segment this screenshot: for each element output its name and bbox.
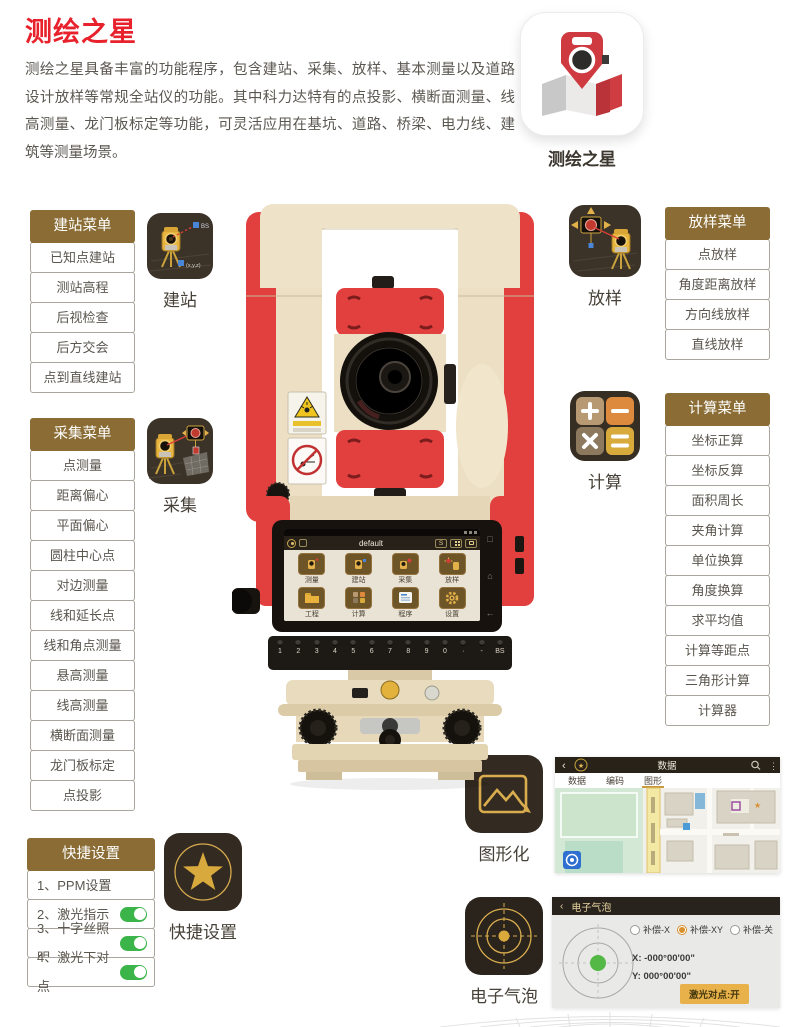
menu-item: 角度换算 bbox=[665, 575, 770, 606]
svg-text:(x,y,z): (x,y,z) bbox=[186, 263, 201, 269]
key-minus: - bbox=[474, 640, 490, 666]
app-tile: 计算 bbox=[338, 587, 380, 621]
svg-text:BS: BS bbox=[201, 224, 209, 230]
key-5: 5 bbox=[345, 640, 361, 666]
menu-item: 测站高程 bbox=[30, 272, 135, 303]
menu-item: 龙门板标定 bbox=[30, 750, 135, 781]
globe-mesh-decoration bbox=[420, 996, 787, 1027]
menu-item: 线高测量 bbox=[30, 690, 135, 721]
surveystar-app-icon bbox=[536, 28, 628, 120]
kuaijie-star-icon bbox=[164, 833, 242, 911]
menu-caiji: 采集菜单 点测量 距离偏心 平面偏心 圆柱中心点 对边测量 线和延长点 线和角点… bbox=[30, 418, 135, 811]
app-tile: 程序 bbox=[385, 587, 427, 621]
total-station-body bbox=[232, 196, 548, 792]
laser-warning-label bbox=[288, 392, 326, 434]
app-grid: 测量 建站 采集 放样 工程 计算 程序 设置 bbox=[284, 550, 480, 621]
app-tile: 设置 bbox=[431, 587, 473, 621]
feature-fangyang: 放样 bbox=[565, 205, 645, 309]
menu-item: 点到直线建站 bbox=[30, 362, 135, 393]
menu-item: 方向线放样 bbox=[665, 299, 770, 330]
jianzhan-icon: BS (x,y,z) bbox=[147, 213, 213, 279]
menu-item-label: 4、激光下对点 bbox=[37, 943, 120, 1001]
app-tile: 放样 bbox=[431, 553, 473, 587]
menu-item: 单位换算 bbox=[665, 545, 770, 576]
tab-graphic: 图形 bbox=[644, 775, 662, 786]
toolbar-button-s: S bbox=[435, 539, 447, 548]
radio-comp-off: 补偿-关 bbox=[730, 923, 773, 936]
menu-item-label: 1、PPM设置 bbox=[37, 871, 111, 900]
key-3: 3 bbox=[309, 640, 325, 666]
device-keyboard: 1 2 3 4 5 6 7 8 9 0 · - BS bbox=[272, 640, 508, 666]
project-name: default bbox=[310, 539, 432, 548]
menu-item: 求平均值 bbox=[665, 605, 770, 636]
menu-item: 面积周长 bbox=[665, 485, 770, 516]
nav-home-icon: ⌂ bbox=[487, 571, 492, 581]
feature-label: 快捷设置 bbox=[161, 918, 245, 943]
app-program-icon bbox=[392, 587, 419, 609]
ebubble-header: ‹ 电子气泡 bbox=[552, 897, 780, 915]
menu-item: 对边测量 bbox=[30, 570, 135, 601]
menu-item: 平面偏心 bbox=[30, 510, 135, 541]
radio-comp-xy: 补偿-XY bbox=[677, 923, 723, 936]
key-1: 1 bbox=[272, 640, 288, 666]
screen-status-bar bbox=[284, 529, 480, 536]
back-icon: ‹ bbox=[560, 901, 563, 912]
back-icon: ‹ bbox=[562, 760, 566, 772]
menu-button-icon bbox=[299, 539, 307, 547]
app-hero: 测绘之星 bbox=[519, 12, 645, 170]
menu-jisuan: 计算菜单 坐标正算 坐标反算 面积周长 夹角计算 单位换算 角度换算 求平均值 … bbox=[665, 393, 770, 726]
menu-item: 直线放样 bbox=[665, 329, 770, 360]
toggle-on-reticle-light bbox=[120, 936, 147, 951]
menu-kuaijie: 快捷设置 1、PPM设置 2、激光指示 3、十字丝照明 4、激光下对点 bbox=[27, 838, 155, 987]
jisuan-icon bbox=[570, 391, 640, 461]
map-screen-title: 数据 bbox=[657, 760, 677, 772]
device-nav-buttons: □ ⌂ ← bbox=[482, 534, 498, 618]
key-9: 9 bbox=[419, 640, 435, 666]
tab-code: 编码 bbox=[606, 775, 624, 786]
page-title: 测绘之星 bbox=[25, 10, 137, 49]
menu-item: 后方交会 bbox=[30, 332, 135, 363]
menu-item: 点测量 bbox=[30, 450, 135, 481]
menu-fangyang: 放样菜单 点放样 角度距离放样 方向线放样 直线放样 bbox=[665, 207, 770, 360]
menu-item: 线和延长点 bbox=[30, 600, 135, 631]
key-dot: · bbox=[455, 640, 471, 666]
feature-kuaijie: 快捷设置 bbox=[161, 833, 245, 943]
page: 测绘之星 测绘之星具备丰富的功能程序，包含建站、采集、放样、基本测量以及道路设计… bbox=[0, 0, 787, 1027]
app-collect-icon bbox=[392, 553, 419, 575]
key-6: 6 bbox=[364, 640, 380, 666]
app-stakeout-icon bbox=[439, 553, 466, 575]
star-button-icon bbox=[287, 539, 296, 548]
menu-item: 坐标反算 bbox=[665, 455, 770, 486]
intro-paragraph: 测绘之星具备丰富的功能程序，包含建站、采集、放样、基本测量以及道路设计放样等常规… bbox=[25, 57, 515, 167]
app-settings-gear-icon bbox=[439, 587, 466, 609]
menu-item: 计算器 bbox=[665, 695, 770, 726]
map-canvas: ★ bbox=[555, 788, 780, 873]
key-4: 4 bbox=[327, 640, 343, 666]
grid-view-button-icon bbox=[450, 539, 462, 548]
compensation-radios: 补偿-X 补偿-XY 补偿-关 bbox=[630, 923, 773, 936]
feature-label: 放样 bbox=[565, 284, 645, 309]
tab-data: 数据 bbox=[568, 775, 586, 786]
feature-caiji: 采集 bbox=[143, 418, 217, 516]
x-value: X: -000°00'00" bbox=[632, 953, 695, 964]
radio-off-icon bbox=[630, 925, 640, 935]
level-bullseye bbox=[557, 920, 639, 1006]
menu-header: 放样菜单 bbox=[665, 207, 770, 240]
menu-item: 悬高测量 bbox=[30, 660, 135, 691]
feature-label: 图形化 bbox=[462, 840, 546, 865]
bubble-dot bbox=[590, 955, 606, 971]
menu-item: 距离偏心 bbox=[30, 480, 135, 511]
app-tile: 工程 bbox=[291, 587, 333, 621]
menu-header: 快捷设置 bbox=[27, 838, 155, 871]
menu-jianzhan: 建站菜单 已知点建站 测站高程 后视检查 后方交会 点到直线建站 bbox=[30, 210, 135, 393]
feature-label: 建站 bbox=[143, 286, 217, 311]
fangyang-icon bbox=[569, 205, 641, 277]
laser-prohibition-label bbox=[288, 438, 326, 484]
nav-back-icon: ← bbox=[486, 608, 495, 618]
toggle-on-laser-plummet bbox=[120, 965, 147, 980]
menu-item: 三角形计算 bbox=[665, 665, 770, 696]
app-icon-label: 测绘之星 bbox=[519, 145, 645, 170]
map-star-marker: ★ bbox=[754, 801, 761, 810]
menu-item: 点投影 bbox=[30, 780, 135, 811]
total-station-photo: default S 测量 建站 采集 放样 工程 计算 程序 设置 □ ⌂ ← bbox=[232, 196, 548, 792]
app-tile: 建站 bbox=[338, 553, 380, 587]
menu-item: 角度距离放样 bbox=[665, 269, 770, 300]
radio-off-icon bbox=[730, 925, 740, 935]
menu-item: 后视检查 bbox=[30, 302, 135, 333]
menu-header: 计算菜单 bbox=[665, 393, 770, 426]
key-7: 7 bbox=[382, 640, 398, 666]
ebubble-screenshot: ‹ 电子气泡 补偿-X 补偿-XY 补偿-关 X: -000°00'00" Y:… bbox=[552, 897, 780, 1008]
key-0: 0 bbox=[437, 640, 453, 666]
radio-on-icon bbox=[677, 925, 687, 935]
menu-item: 圆柱中心点 bbox=[30, 540, 135, 571]
key-8: 8 bbox=[400, 640, 416, 666]
app-calc-icon bbox=[345, 587, 372, 609]
menu-item: 计算等距点 bbox=[665, 635, 770, 666]
menu-header: 采集菜单 bbox=[30, 418, 135, 451]
radio-comp-x: 补偿-X bbox=[630, 923, 670, 936]
menu-item: 夹角计算 bbox=[665, 515, 770, 546]
device-screen: default S 测量 建站 采集 放样 工程 计算 程序 设置 bbox=[284, 529, 480, 621]
feature-jisuan: 计算 bbox=[565, 391, 645, 493]
menu-dots-icon: ⋮ bbox=[769, 761, 778, 771]
menu-item: 1、PPM设置 bbox=[27, 870, 155, 900]
ebubble-body: 补偿-X 补偿-XY 补偿-关 X: -000°00'00" Y: 000°00… bbox=[552, 915, 780, 1008]
app-tile: 采集 bbox=[385, 553, 427, 587]
menu-item: 线和角点测量 bbox=[30, 630, 135, 661]
key-2: 2 bbox=[290, 640, 306, 666]
nav-recent-icon: □ bbox=[487, 534, 492, 544]
ebubble-title: 电子气泡 bbox=[571, 899, 611, 914]
menu-item: 点放样 bbox=[665, 239, 770, 270]
app-station-icon bbox=[345, 553, 372, 575]
caiji-icon bbox=[147, 418, 213, 484]
star-icon: ★ bbox=[578, 762, 584, 770]
menu-item: 已知点建站 bbox=[30, 242, 135, 273]
menu-item: 4、激光下对点 bbox=[27, 957, 155, 987]
app-measure-icon bbox=[298, 553, 325, 575]
app-icon bbox=[520, 12, 644, 136]
point-marker bbox=[683, 823, 690, 830]
toggle-on-laser-pointer bbox=[120, 907, 147, 922]
feature-label: 计算 bbox=[565, 468, 645, 493]
app-tile: 测量 bbox=[291, 553, 333, 587]
graphic-view-screenshot: ‹ ★ 数据 ⋮ 数据 编码 图形 ★ bbox=[555, 757, 780, 873]
feature-jianzhan: BS (x,y,z) 建站 bbox=[143, 213, 217, 311]
app-project-folder-icon bbox=[298, 587, 325, 609]
screen-title-bar: default S bbox=[284, 536, 480, 550]
qipao-bubble-icon bbox=[465, 897, 543, 975]
toolbar-button-icon bbox=[465, 539, 477, 548]
menu-header: 建站菜单 bbox=[30, 210, 135, 243]
feature-label: 采集 bbox=[143, 491, 217, 516]
feature-qipao: 电子气泡 bbox=[462, 897, 546, 1007]
key-bs: BS bbox=[492, 640, 508, 666]
menu-item: 坐标正算 bbox=[665, 425, 770, 456]
y-value: Y: 000°00'00" bbox=[632, 971, 691, 982]
menu-item: 横断面测量 bbox=[30, 720, 135, 751]
